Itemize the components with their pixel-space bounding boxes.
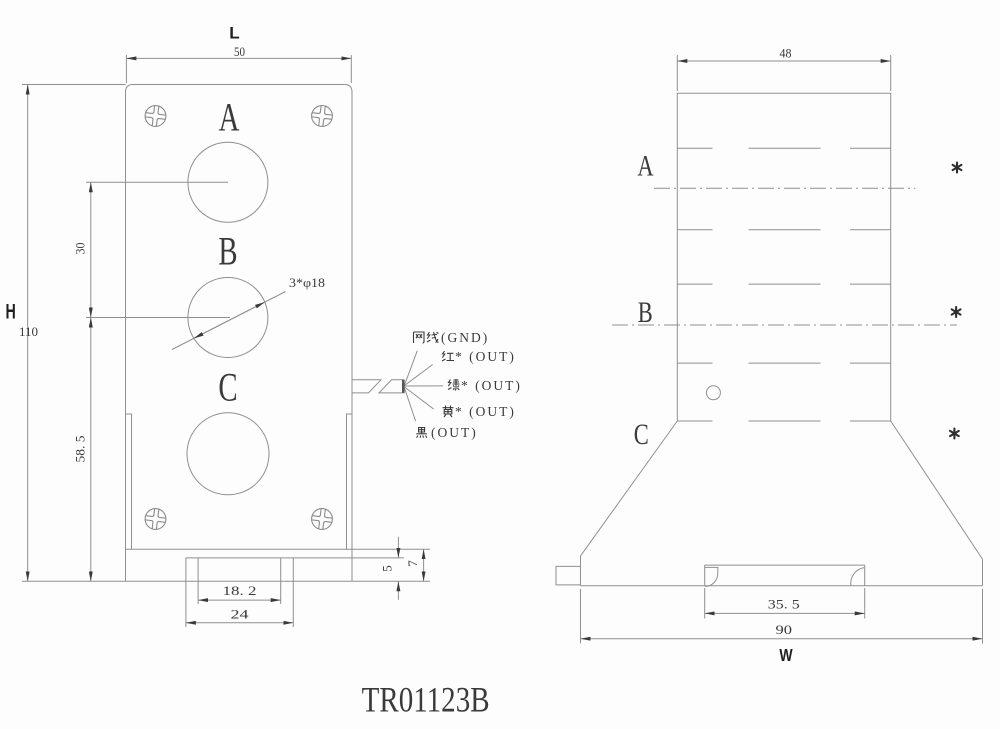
svg-text:58. 5: 58. 5 bbox=[73, 436, 88, 463]
svg-text:(GND): (GND) bbox=[441, 330, 489, 345]
svg-text:* (OUT): * (OUT) bbox=[455, 404, 516, 419]
svg-text:3*φ18: 3*φ18 bbox=[289, 275, 325, 290]
svg-text:(OUT): (OUT) bbox=[431, 425, 478, 440]
svg-text:48: 48 bbox=[780, 46, 792, 61]
svg-text:7: 7 bbox=[405, 560, 420, 567]
svg-text:90: 90 bbox=[776, 622, 793, 637]
svg-text:5: 5 bbox=[380, 565, 395, 572]
svg-text:C: C bbox=[218, 365, 237, 410]
svg-text:L: L bbox=[229, 24, 239, 43]
svg-text:A: A bbox=[219, 95, 240, 140]
svg-text:* (OUT): * (OUT) bbox=[461, 378, 522, 393]
svg-text:B: B bbox=[218, 229, 237, 274]
svg-text:18. 2: 18. 2 bbox=[223, 583, 257, 598]
svg-text:110: 110 bbox=[19, 324, 38, 339]
svg-text:W: W bbox=[779, 645, 793, 665]
svg-text:H: H bbox=[6, 300, 16, 323]
svg-text:50: 50 bbox=[234, 44, 245, 59]
svg-text:A: A bbox=[637, 148, 653, 182]
svg-text:35. 5: 35. 5 bbox=[768, 597, 800, 612]
svg-text:* (OUT): * (OUT) bbox=[455, 349, 516, 364]
svg-text:24: 24 bbox=[231, 607, 250, 622]
svg-text:30: 30 bbox=[73, 243, 88, 255]
svg-text:C: C bbox=[634, 417, 649, 451]
svg-text:B: B bbox=[638, 295, 653, 329]
svg-text:TR01123B: TR01123B bbox=[362, 680, 490, 720]
